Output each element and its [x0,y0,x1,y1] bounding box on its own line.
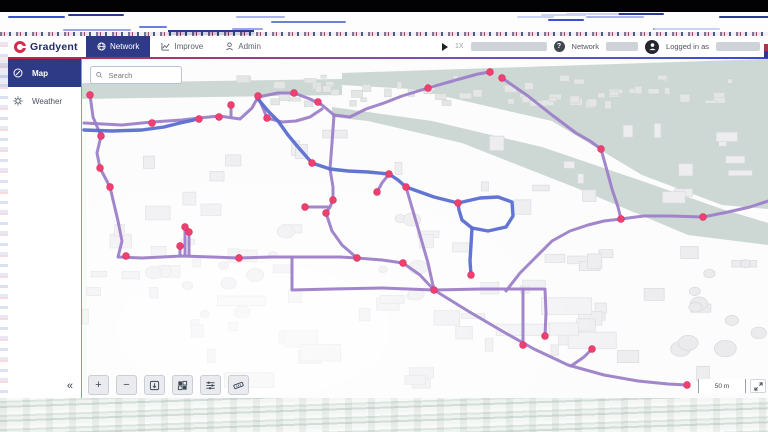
map-canvas[interactable]: + − 50 m [82,59,768,398]
network-node[interactable] [98,133,105,140]
app-header: Gradyent Network Improve Admin 1X [0,36,768,57]
network-node[interactable] [87,92,94,99]
sidebar-item-map[interactable]: Map [0,59,81,87]
glitch-fragment [63,29,131,31]
sidebar-item-label: Map [32,69,48,78]
network-node[interactable] [542,333,549,340]
weather-sun-icon [13,96,23,106]
network-node[interactable] [520,342,527,349]
measure-ruler-icon [233,380,244,391]
network-node[interactable] [196,116,203,123]
network-node[interactable] [403,184,410,191]
network-node[interactable] [330,197,337,204]
glitch-fragment [764,44,768,58]
gradyent-logo-icon [14,41,26,53]
help-icon[interactable]: ? [554,41,565,52]
network-node[interactable] [354,255,361,262]
network-node[interactable] [598,146,605,153]
tab-admin[interactable]: Admin [214,36,272,57]
filters-button[interactable] [200,375,221,395]
glitch-fragment [548,19,584,21]
network-node[interactable] [264,115,271,122]
avatar[interactable] [645,40,659,54]
brand-name: Gradyent [30,41,78,53]
glitch-fragment [8,16,65,18]
chart-icon [161,42,170,51]
network-node[interactable] [487,69,494,76]
video-artifact-band-bottom [0,398,768,432]
tab-improve[interactable]: Improve [150,36,214,57]
network-node[interactable] [149,120,156,127]
header-right: 1X ? Network Logged in as [442,36,768,57]
measure-button[interactable] [228,375,249,395]
network-node[interactable] [97,165,104,172]
admin-user-icon [225,42,234,51]
glitch-fragment [654,28,721,30]
network-node[interactable] [302,204,309,211]
glitch-fragment [719,16,768,18]
network-label: Network [572,42,600,51]
network-node[interactable] [216,114,223,121]
network-node[interactable] [315,99,322,106]
network-node[interactable] [618,216,625,223]
tab-network[interactable]: Network [86,36,150,57]
sidebar: Map Weather « [0,59,82,398]
network-node[interactable] [589,346,596,353]
map-svg[interactable] [82,59,768,398]
network-node[interactable] [455,200,462,207]
globe-icon [97,42,106,51]
map-compass-icon [13,68,23,78]
app-window: Gradyent Network Improve Admin 1X [0,36,768,398]
network-node[interactable] [123,253,130,260]
download-button[interactable] [144,375,165,395]
person-icon [648,42,657,51]
network-node[interactable] [228,102,235,109]
expand-button[interactable] [750,379,766,393]
network-node[interactable] [684,382,691,389]
layers-grid-icon [177,380,188,391]
network-node[interactable] [431,287,438,294]
brand-logo[interactable]: Gradyent [0,36,80,57]
glitch-fragment [236,16,285,18]
network-node[interactable] [386,171,393,178]
glitch-fragment [566,13,619,15]
search-box [90,66,182,84]
search-input[interactable] [107,70,176,81]
sidebar-item-label: Weather [32,97,62,106]
zoom-in-button[interactable]: + [88,375,109,395]
zoom-out-button[interactable]: − [116,375,137,395]
network-node[interactable] [374,189,381,196]
tab-label: Admin [238,42,261,51]
playback-speed[interactable]: 1X [455,43,464,50]
download-icon [149,380,160,391]
map-scale: 50 m [698,379,746,393]
network-node[interactable] [291,90,298,97]
glitch-fragment [586,16,645,18]
tab-label: Network [110,42,139,51]
glitch-fragment [271,21,346,23]
screen: Gradyent Network Improve Admin 1X [0,0,768,432]
network-node[interactable] [177,243,184,250]
network-node[interactable] [323,210,330,217]
play-icon[interactable] [442,43,448,51]
network-node[interactable] [499,75,506,82]
basemap-button[interactable] [172,375,193,395]
video-artifact-band-left [0,36,8,398]
tab-label: Improve [174,42,203,51]
network-node[interactable] [425,85,432,92]
login-label: Logged in as [666,42,709,51]
network-node[interactable] [700,214,707,221]
pipe-blue[interactable] [470,228,472,275]
map-toolbar: + − [88,375,249,395]
redacted-username [716,42,760,51]
sidebar-item-weather[interactable]: Weather [0,87,81,115]
main-nav: Network Improve Admin [86,36,272,57]
redacted-datetime [471,42,547,51]
network-node[interactable] [309,160,316,167]
expand-arrows-icon [754,382,763,391]
glitch-fragment [68,14,124,16]
video-artifact-band-top [0,0,768,36]
search-icon [96,71,103,79]
network-node[interactable] [236,255,243,262]
network-node[interactable] [400,260,407,267]
glitch-fragment [139,26,166,28]
redacted-network-name [606,42,638,51]
network-node[interactable] [186,229,193,236]
network-node[interactable] [255,93,262,100]
network-node[interactable] [468,272,475,279]
letterbox-bar [0,0,768,12]
sliders-icon [205,380,216,391]
sidebar-collapse-button[interactable]: « [67,381,73,392]
network-node[interactable] [107,184,114,191]
